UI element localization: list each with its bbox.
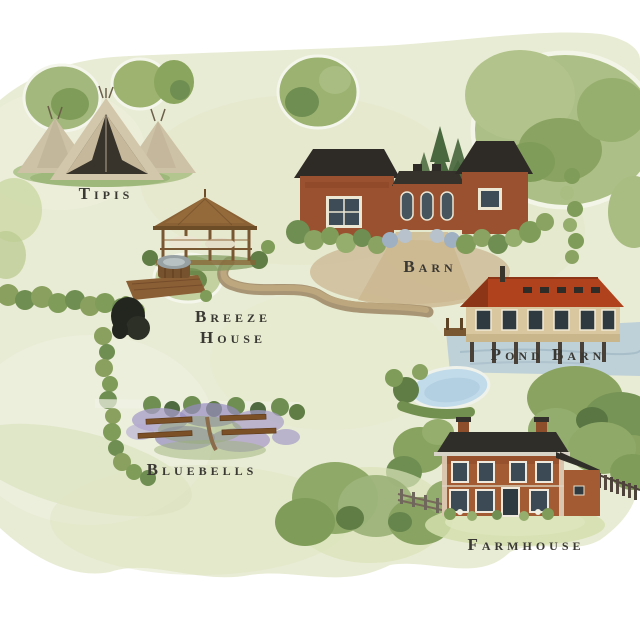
- venue-map: Tipis Barn Breeze House Pond Barn Bluebe…: [0, 0, 640, 640]
- label-barn: Barn: [403, 256, 456, 277]
- label-pond-barn: Pond Barn: [491, 344, 606, 365]
- label-breeze-house: Breeze House: [195, 306, 271, 348]
- label-farmhouse: Farmhouse: [467, 534, 584, 555]
- label-tipis: Tipis: [79, 183, 134, 204]
- label-bluebells: Bluebells: [147, 459, 258, 480]
- tree-cluster-top-middle: [278, 56, 358, 128]
- label-breeze-house-line2: House: [195, 327, 271, 348]
- label-breeze-house-line1: Breeze: [195, 306, 271, 327]
